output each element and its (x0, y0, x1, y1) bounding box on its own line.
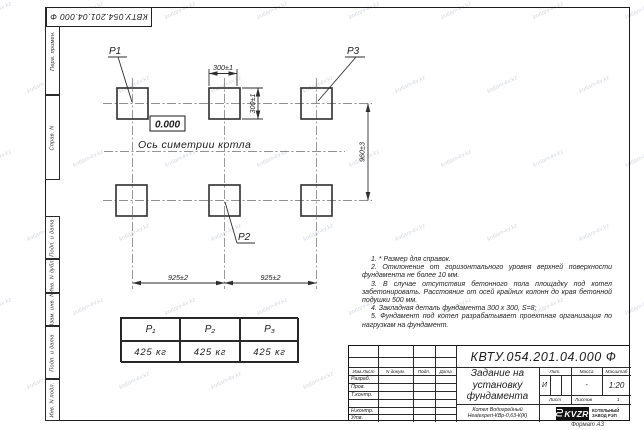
dim-col-spacing-right: 925±2 (261, 273, 281, 282)
load-table-value: 425 кг (240, 341, 299, 363)
load-table-header: P₃ (240, 318, 299, 341)
strip-cell-sprav-n: Справ. N (45, 95, 60, 180)
product-line: Heatexpert-КВр-0,63-К(К) (468, 413, 528, 419)
strip-cell-inv-podl: Инв. N подл. (45, 379, 60, 421)
strip-label: Подп. и дата (50, 219, 56, 256)
strip-label: Инв. N дубл. (50, 259, 56, 294)
tb-lit-value: И (539, 375, 550, 395)
titleblock-line (349, 383, 456, 384)
technical-notes: 1. * Размер для справок. 2. Отклонение о… (362, 256, 612, 330)
note-line: 2. Отклонение от горизонтального уровня … (362, 264, 612, 280)
tb-sheets-value: 1 (617, 397, 620, 402)
coil-icon (556, 408, 563, 419)
tb-row-prov: Пров. (351, 384, 365, 390)
note-line: 3. В случае отсутствия бетонного пола пл… (362, 281, 612, 306)
corner-doc-number: КВТУ.054.201.04.000 Ф (50, 12, 148, 22)
titleblock-line (349, 357, 456, 358)
titleblock-line (550, 375, 551, 395)
strip-label: Справ. N (50, 125, 56, 150)
strip-cell-podp-data-2: Подп. и дата (45, 326, 60, 379)
title-line: фундамента (467, 391, 528, 403)
load-table-header: P₂ (180, 318, 240, 341)
tb-sheets-label: Листов (575, 397, 592, 402)
tb-lit-label: Лит. (539, 367, 571, 375)
titleblock-product: Котел Водогрейный Heatexpert-КВр-0,63-К(… (456, 404, 539, 422)
note-line: 5. Фундамент под котел разрабатывает про… (362, 313, 612, 329)
tb-row-razrab: Разраб. (351, 376, 370, 382)
strip-label: Взам. инв. N (50, 292, 56, 327)
titleblock-line (349, 414, 456, 415)
load-table: P₁ P₂ P₃ 425 кг 425 кг 425 кг (120, 317, 298, 362)
titleblock-doc-number: КВТУ.054.201.04.000 Ф (456, 346, 631, 367)
title-block: КВТУ.054.201.04.000 Ф Изм.Лист N докум. … (348, 345, 630, 421)
tb-row-nkontr: Н.контр. (351, 408, 373, 414)
corner-doc-number-stamp: КВТУ.054.201.04.000 Ф (46, 7, 152, 27)
tb-col-n-dokum: N докум. (378, 367, 413, 375)
level-mark-value: 0.000 (155, 120, 180, 131)
load-table-header: P₁ (121, 318, 180, 341)
strip-cell-podp-data-1: Подп. и дата (45, 216, 60, 259)
tb-col-data: Дата (435, 367, 456, 375)
kvzr-logo: KVZR (556, 407, 589, 420)
dim-pad-width: 300±1 (213, 63, 233, 72)
titleblock-title: Задание на установку фундамента (456, 367, 539, 404)
tb-row-tkontr: Т.контр. (351, 392, 372, 398)
note-line: 1. * Размер для справок. (362, 256, 612, 264)
point-label-p3: P3 (347, 46, 360, 57)
tb-scale-label: Масштаб (602, 367, 631, 375)
symmetry-axis-label: Ось симетрии котла (138, 139, 251, 151)
load-table-value: 425 кг (180, 341, 240, 363)
strip-label: Инв. N подл. (50, 382, 56, 417)
dim-row-spacing: 960±3 (358, 142, 367, 162)
titleblock-line (349, 399, 456, 400)
title-line: Задание на (471, 368, 524, 380)
tb-col-izm-list: Изм.Лист (349, 367, 378, 375)
logo-text: KVZR (564, 409, 588, 419)
logo-caption-line: ЗАВОД РЭП (592, 413, 619, 418)
point-label-p2: P2 (238, 232, 251, 243)
strip-label: Подп. и дата (50, 334, 56, 371)
tb-sheet-label: Лист (539, 395, 571, 404)
strip-cell-vzam-inv: Взам. инв. N (45, 293, 60, 326)
tb-col-podp: Подп. (413, 367, 435, 375)
point-label-p1: P1 (109, 46, 121, 57)
format-label: Формат А3 (540, 422, 635, 428)
logo-caption: КОТЕЛЬНЫЙ ЗАВОД РЭП (592, 408, 619, 419)
dim-col-spacing-left: 925±2 (168, 273, 188, 282)
load-table-value: 425 кг (121, 341, 180, 363)
title-line: установку (473, 380, 523, 392)
foundation-pads (116, 88, 332, 216)
drawing-sheet: kotlam-kv.kzkotlam-kv.kzkotlam-kv.kzkotl… (0, 0, 644, 430)
strip-label: Перв. примен. (50, 31, 56, 71)
tb-mass-value: - (571, 375, 602, 395)
strip-cell-inv-dubl: Инв. N дубл. (45, 259, 60, 293)
tb-scale-value: 1:20 (602, 375, 631, 395)
tb-row-utv: Утв. (351, 415, 363, 421)
dim-pad-height: 300±1 (248, 94, 257, 114)
tb-mass-label: Масса (571, 367, 602, 375)
titleblock-line (561, 375, 562, 395)
